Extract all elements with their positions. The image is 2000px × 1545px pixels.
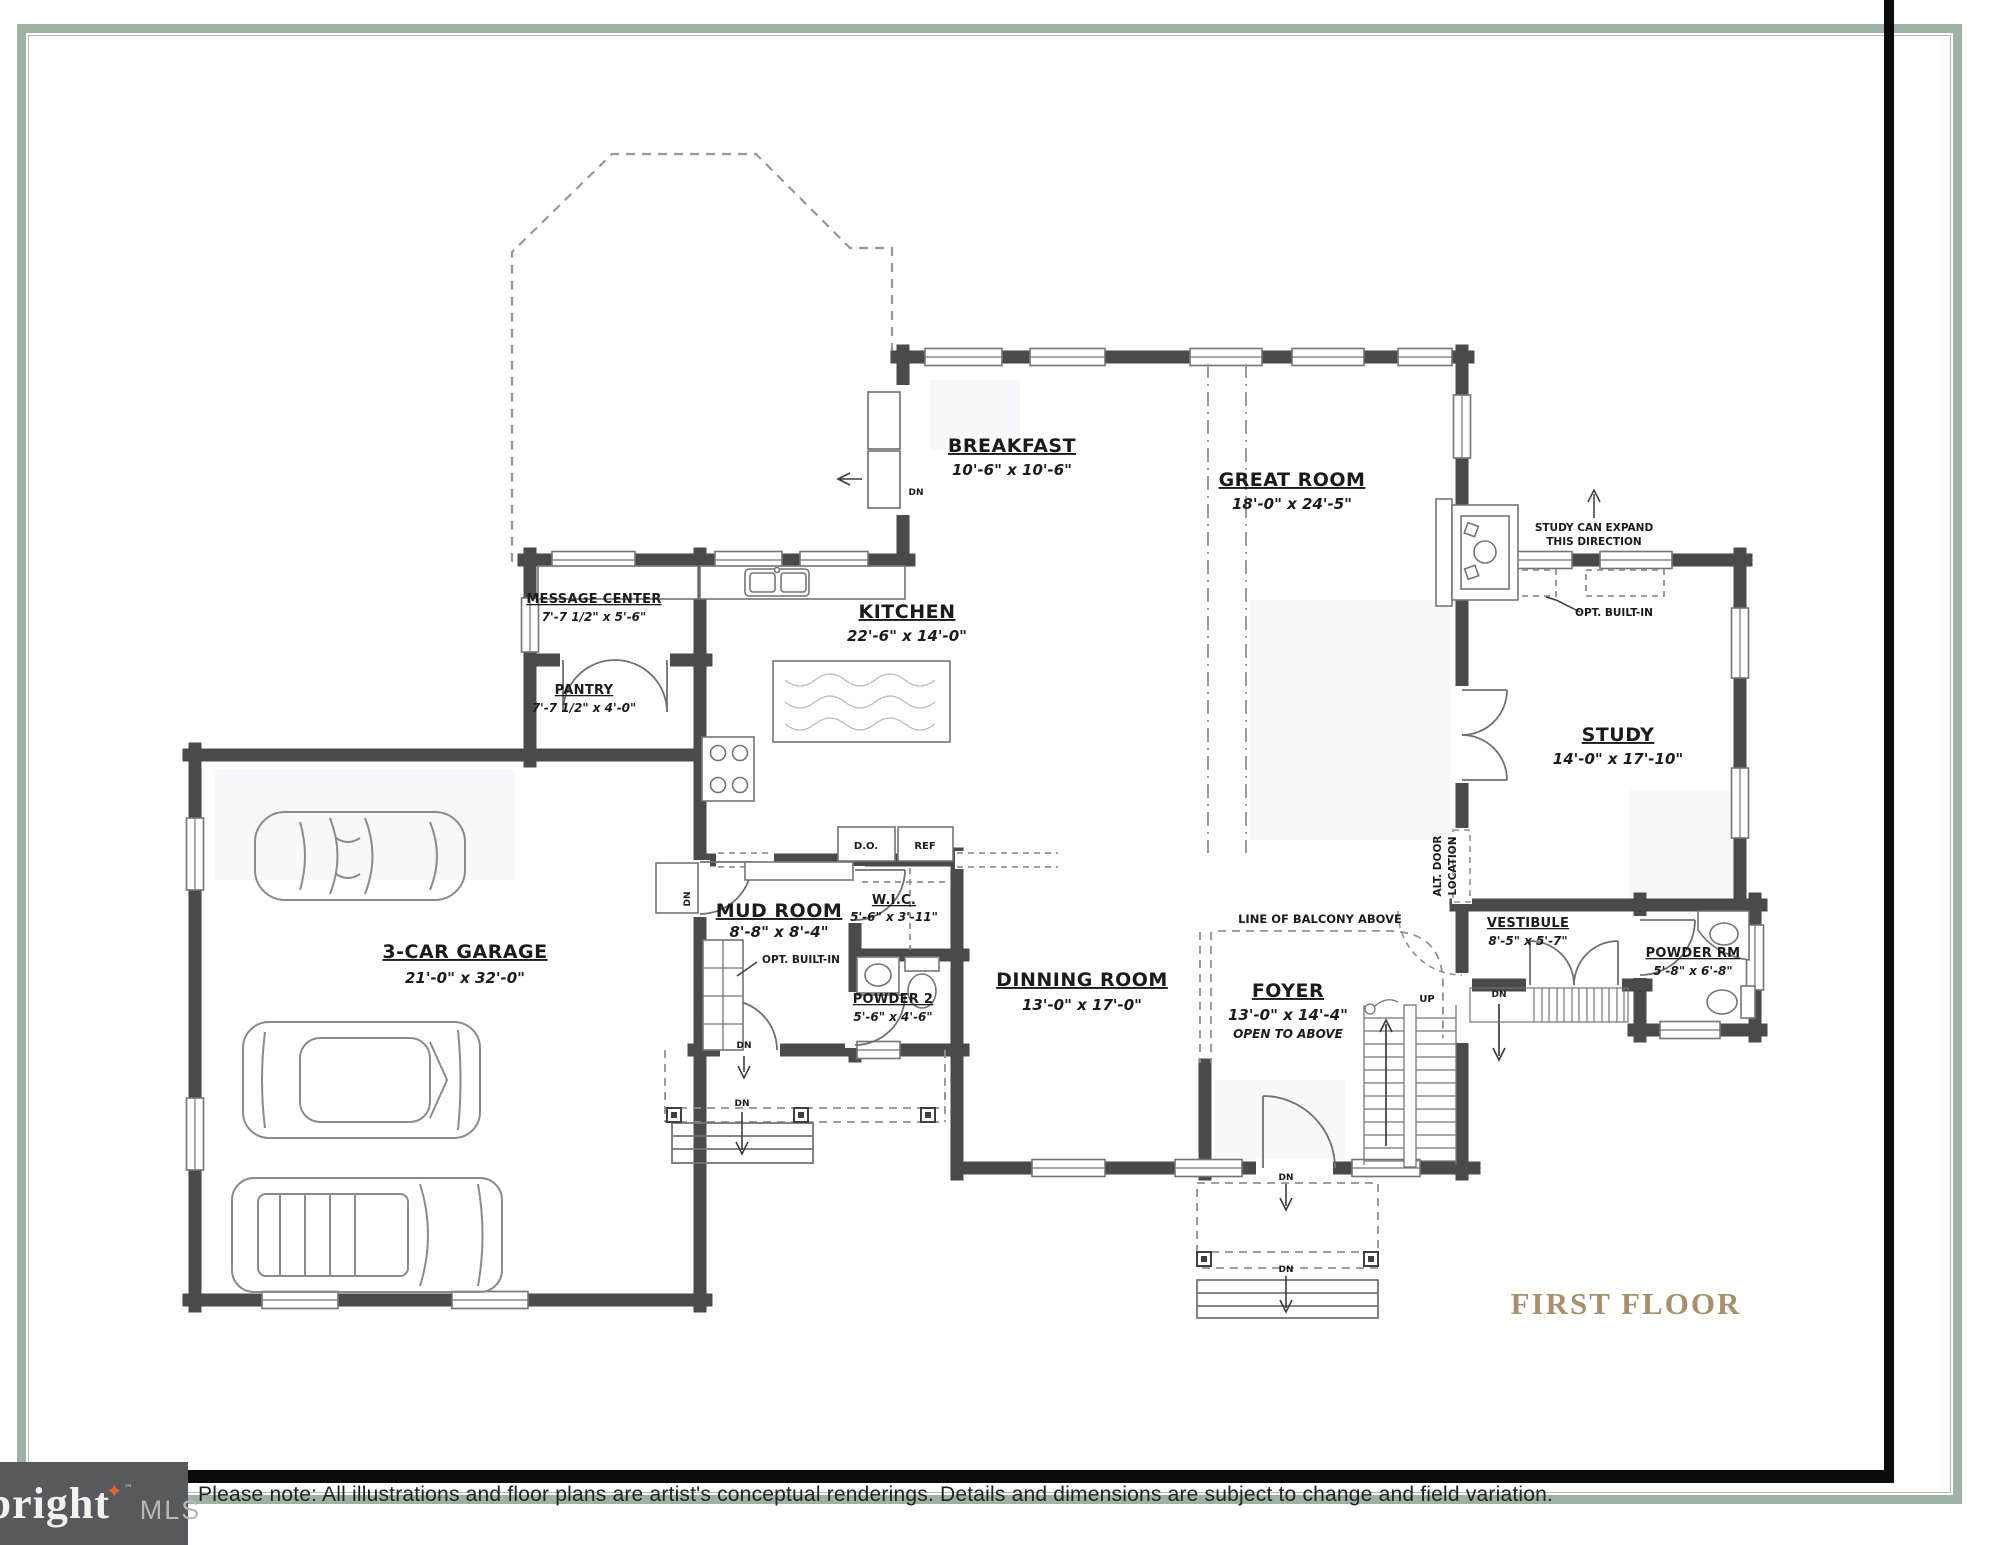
room-dims-great-room: 18'-0" x 24'-5"	[1232, 495, 1352, 513]
room-dims-vestibule: 8'-5" x 5'-7"	[1488, 934, 1567, 948]
room-dims-foyer: 13'-0" x 14'-4"	[1228, 1006, 1348, 1024]
sheet-title: FIRST FLOOR	[1506, 1286, 1746, 1322]
logo-star-icon: ✦	[106, 1479, 123, 1503]
appliance-refrigerator: REF	[914, 841, 935, 852]
room-label-garage: 3-CAR GARAGE	[382, 941, 547, 963]
room-dims-pantry: 7'-7 1/2" x 4'-0"	[532, 701, 637, 715]
side-porch	[665, 1050, 945, 1163]
garage-cars	[232, 812, 502, 1292]
room-label-study: STUDY	[1582, 724, 1655, 746]
logo-trademark: ™	[124, 1484, 133, 1494]
sedan-car-illustration	[243, 1022, 480, 1138]
room-dims-garage: 21'-0" x 32'-0"	[405, 969, 525, 987]
note-opt-built-in-mud: OPT. BUILT-IN	[762, 954, 840, 966]
marker-dn-mud: DN	[736, 1041, 751, 1051]
room-label-vestibule: VESTIBULE	[1487, 916, 1569, 931]
room-label-breakfast: BREAKFAST	[948, 435, 1076, 457]
room-label-pantry: PANTRY	[555, 683, 614, 698]
suv-car-illustration	[232, 1178, 502, 1292]
room-label-powder-rm: POWDER RM	[1646, 946, 1741, 961]
room-dims-message-center: 7'-7 1/2" x 5'-6"	[542, 610, 647, 624]
room-label-powder-2: POWDER 2	[853, 992, 934, 1007]
room-dims-kitchen: 22'-6" x 14'-0"	[847, 627, 967, 645]
note-study-expand-2: THIS DIRECTION	[1546, 536, 1641, 548]
logo-mls-text: MLS	[140, 1495, 202, 1526]
room-dims-study: 14'-0" x 17'-10"	[1553, 750, 1683, 768]
floor-plan-sheet: BREAKFAST 10'-6" x 10'-6" GREAT ROOM 18'…	[0, 0, 2000, 1545]
note-alt-door-1: ALT. DOOR	[1432, 836, 1444, 897]
marker-dn-breakfast: DN	[908, 488, 923, 498]
note-balcony-line: LINE OF BALCONY ABOVE	[1238, 912, 1402, 926]
room-dims-dining: 13'-0" x 17'-0"	[1022, 996, 1142, 1014]
marker-dn-front-door: DN	[1278, 1173, 1293, 1183]
room-label-mud-room: MUD ROOM	[716, 900, 843, 922]
marker-up: UP	[1419, 994, 1434, 1005]
room-dims-mud-room: 8'-8" x 8'-4"	[729, 923, 828, 941]
room-label-wic: W.I.C.	[872, 893, 916, 908]
deck-outline	[512, 154, 892, 562]
room-label-kitchen: KITCHEN	[859, 601, 956, 623]
marker-dn-stair: DN	[1491, 990, 1506, 1000]
appliance-double-oven: D.O.	[854, 841, 878, 852]
note-study-expand-1: STUDY CAN EXPAND	[1535, 522, 1654, 534]
front-porch	[1197, 1183, 1378, 1318]
room-label-dining: DINNING ROOM	[996, 969, 1168, 991]
marker-dn-garage: DN	[683, 891, 693, 906]
bright-mls-logo: bright ✦ ™ MLS	[0, 1462, 188, 1545]
disclaimer-text: Please note: All illustrations and floor…	[198, 1483, 1878, 1507]
note-alt-door-2: LOCATION	[1447, 836, 1459, 895]
room-label-foyer: FOYER	[1252, 980, 1324, 1002]
scan-tint	[215, 380, 1735, 1160]
room-dims-wic: 5'-6" x 3'-11"	[850, 910, 938, 924]
room-note-foyer: OPEN TO ABOVE	[1233, 1027, 1343, 1041]
scan-edge-vertical	[1884, 0, 1894, 1483]
marker-dn-side-porch: DN	[734, 1099, 749, 1109]
logo-brand-text: bright	[0, 1482, 110, 1526]
room-label-message-center: MESSAGE CENTER	[526, 592, 661, 607]
room-label-great-room: GREAT ROOM	[1219, 469, 1366, 491]
room-dims-powder-2: 5'-6" x 4'-6"	[853, 1010, 932, 1024]
marker-dn-front-steps: DN	[1278, 1265, 1293, 1275]
disclaimer-divider-bar	[180, 1470, 1894, 1483]
room-dims-powder-rm: 5'-8" x 6'-8"	[1653, 964, 1732, 978]
deck-door-arrow	[838, 473, 862, 485]
room-dims-breakfast: 10'-6" x 10'-6"	[952, 461, 1072, 479]
note-opt-built-in-study: OPT. BUILT-IN	[1575, 607, 1653, 619]
